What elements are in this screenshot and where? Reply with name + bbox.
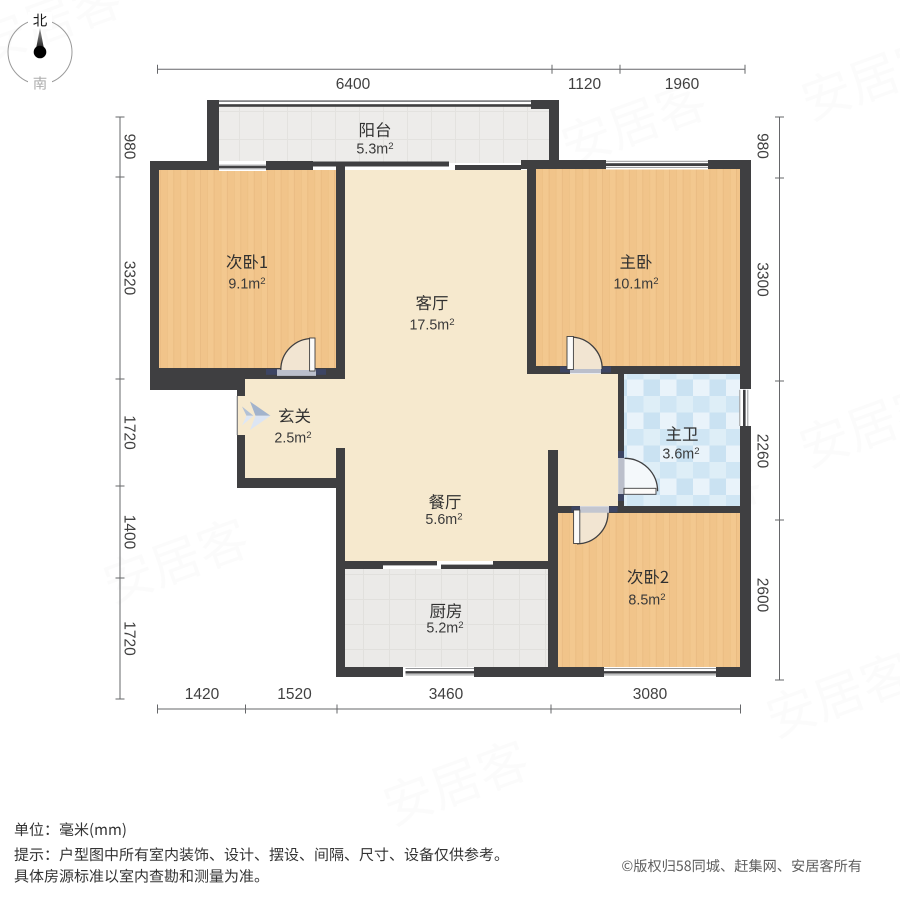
svg-text:1520: 1520 (277, 686, 312, 703)
svg-text:17.5m2: 17.5m2 (409, 317, 454, 334)
svg-text:980: 980 (121, 134, 138, 160)
svg-text:1720: 1720 (121, 415, 138, 450)
svg-text:8.5m2: 8.5m2 (628, 592, 665, 609)
svg-text:1120: 1120 (568, 76, 602, 93)
svg-text:3300: 3300 (754, 262, 771, 297)
svg-text:5.6m2: 5.6m2 (425, 512, 462, 529)
svg-text:2260: 2260 (754, 434, 771, 469)
svg-text:10.1m2: 10.1m2 (613, 276, 658, 293)
svg-text:1960: 1960 (665, 76, 700, 93)
svg-text:1420: 1420 (185, 686, 220, 703)
svg-text:2.5m2: 2.5m2 (274, 430, 311, 447)
svg-text:5.2m2: 5.2m2 (426, 620, 463, 637)
svg-text:3.6m2: 3.6m2 (662, 446, 699, 463)
svg-text:3080: 3080 (633, 686, 668, 703)
svg-text:5.3m2: 5.3m2 (356, 141, 393, 158)
svg-text:1720: 1720 (121, 621, 138, 656)
svg-text:980: 980 (754, 133, 771, 159)
svg-text:2600: 2600 (754, 578, 771, 613)
svg-text:3320: 3320 (121, 261, 138, 296)
svg-text:9.1m2: 9.1m2 (228, 276, 265, 293)
svg-text:6400: 6400 (336, 76, 371, 93)
svg-text:1400: 1400 (121, 515, 138, 550)
svg-text:3460: 3460 (429, 686, 464, 703)
